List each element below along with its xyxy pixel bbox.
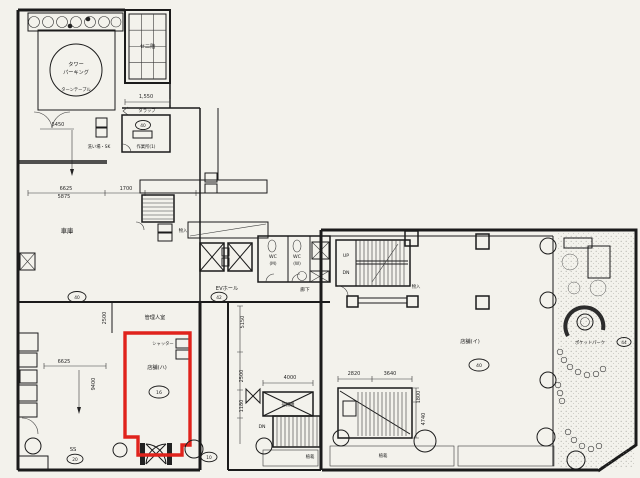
dim-5150: 5150: [240, 316, 246, 329]
wc-m-sub: (M): [269, 261, 276, 267]
dim-5450: 5450: [52, 122, 65, 128]
ladder-label: タラップ: [138, 107, 156, 114]
shop-red-badge: 16: [156, 390, 162, 396]
dim-1550: 1,550: [139, 94, 153, 100]
floorplan-drawing: セ二階 タワー パーキング ターンテーブル 5450 1,550 タラップ 40…: [0, 0, 640, 478]
ss-badge: 20: [72, 457, 78, 463]
dn-stair-b-label: DN: [342, 270, 350, 276]
dn-middle-label: DN: [258, 424, 266, 430]
shop-main-label: 店舗(イ): [460, 337, 480, 345]
dim-3640: 3640: [384, 371, 397, 377]
closet-a-label: 物入: [179, 227, 188, 234]
sink-label: 洗い場・SK: [88, 143, 111, 150]
ev-hall-badge: 42: [216, 295, 222, 301]
ss-label: SS: [70, 447, 77, 453]
garage-badge: 40: [74, 295, 80, 301]
dim-5875: 5875: [58, 194, 71, 200]
closet-b-label: 物入: [412, 283, 421, 290]
dim-4000: 4000: [284, 375, 297, 381]
dim-2500-manager: 2500: [102, 312, 108, 325]
wc-w-label: WC: [293, 254, 302, 260]
up-label: UP: [343, 253, 349, 259]
dim-6625-garage: 6625: [60, 186, 73, 192]
tower-parking-label-2: パーキング: [63, 68, 89, 76]
shop-main-badge: 40: [476, 363, 482, 369]
tower-parking-label-1: タワー: [68, 60, 84, 68]
pocket-park-badge: 44: [621, 340, 627, 346]
dim-4740: 4740: [421, 413, 427, 426]
dim-9400: 9400: [91, 378, 97, 391]
work-room-label: 作業所(1): [137, 143, 156, 150]
dim-6625-ss: 6625: [58, 359, 71, 365]
dim-1800: 1800: [416, 391, 422, 404]
planting-label-1: 植栽: [306, 453, 315, 460]
garage-label: 車庫: [61, 226, 74, 235]
corridor-label: 廊下: [300, 286, 310, 293]
planting-label-2: 植栽: [379, 452, 388, 459]
wc-m-label: WC: [269, 254, 278, 260]
entrance-badge: 10: [206, 455, 212, 461]
mezzanine-label: セ二階: [140, 42, 156, 50]
wc-w-sub: (W): [293, 261, 301, 267]
goods-lift-label: 荷揚機: [282, 401, 296, 408]
dim-2820: 2820: [348, 371, 361, 377]
shop-red-label: 店舗(ハ): [147, 363, 167, 371]
turntable-label: ターンテーブル: [61, 86, 91, 93]
shutter-label: シャッター: [152, 340, 173, 347]
work-room-badge: 40: [140, 123, 146, 129]
pocket-park-label: ポケットパーク: [575, 339, 605, 346]
manager-label: 管理人室: [145, 313, 166, 321]
ev-hall-label: EVホール: [216, 285, 238, 292]
floorplan-page: セ二階 タワー パーキング ターンテーブル 5450 1,550 タラップ 40…: [0, 0, 640, 478]
pocket-park: ポケットパーク 44: [555, 230, 636, 471]
dim-1700: 1700: [120, 186, 133, 192]
